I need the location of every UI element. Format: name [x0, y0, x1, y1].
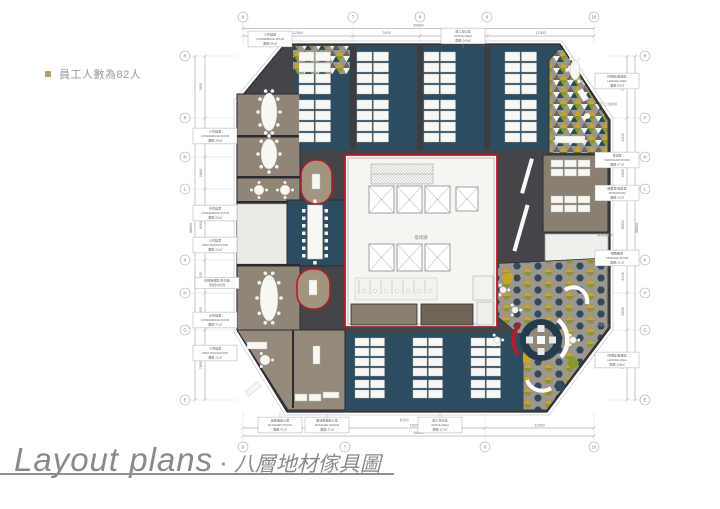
svg-text:12300: 12300	[293, 31, 304, 35]
svg-text:面積:108㎡: 面積:108㎡	[609, 362, 625, 367]
manager-desk	[247, 342, 267, 349]
svg-text:2600: 2600	[621, 169, 625, 177]
svg-text:K: K	[184, 258, 187, 263]
desk	[374, 63, 389, 72]
feature-seat	[537, 336, 545, 344]
svg-text:7800: 7800	[199, 83, 203, 91]
feature-seat	[538, 348, 545, 355]
svg-text:面積:41㎡: 面積:41㎡	[208, 322, 222, 327]
desk	[441, 133, 456, 142]
desk	[413, 358, 427, 366]
svg-text:WORKSHOP ROOM: WORKSHOP ROOM	[604, 158, 630, 162]
room-callout: 中會議室CONFERENCE ROOM面積:28㎡	[193, 205, 237, 221]
svg-text:12300: 12300	[535, 31, 546, 35]
office-chair	[309, 394, 321, 401]
desk	[357, 133, 372, 142]
desk	[471, 338, 485, 346]
desk	[371, 390, 385, 398]
room-callout: 休閒區/聯誼區LEISURE AREA面積:108㎡	[595, 352, 639, 368]
core-room-bottom	[351, 304, 417, 325]
desk	[505, 133, 520, 142]
svg-text:員工辦公區: 員工辦公區	[455, 28, 470, 33]
svg-text:DISCUSSION ROOM: DISCUSSION ROOM	[202, 243, 229, 247]
room-callout: 休閒等候區/多功能彈性使用空間	[195, 277, 239, 288]
svg-text:CONFERENCE ROOM: CONFERENCE ROOM	[256, 37, 285, 41]
svg-text:CONFERENCE ROOM: CONFERENCE ROOM	[201, 318, 230, 322]
desk	[471, 348, 485, 356]
desk	[371, 358, 385, 366]
desk	[424, 100, 439, 109]
desk	[316, 100, 331, 109]
desk	[357, 52, 372, 61]
svg-text:員工休息區: 員工休息區	[432, 417, 447, 422]
slide-canvas: 員工人數為82人	[0, 0, 720, 509]
desk	[316, 85, 331, 94]
svg-text:N: N	[183, 155, 186, 160]
pod-table	[309, 280, 317, 295]
desk	[522, 74, 537, 83]
desk	[551, 205, 563, 212]
room-callout: 小會議室CONFERENCE ROOM面積:36㎡	[248, 31, 292, 48]
desk	[471, 390, 485, 398]
lounge-bench	[555, 136, 585, 143]
svg-text:2600: 2600	[199, 169, 203, 177]
svg-text:38600: 38600	[189, 223, 193, 234]
staff-count-note: 員工人數為82人	[45, 66, 141, 82]
svg-text:OFFICE AREA: OFFICE AREA	[431, 423, 449, 427]
desk	[424, 111, 439, 120]
room-wall	[237, 176, 300, 179]
svg-text:面積:37㎡: 面積:37㎡	[320, 427, 334, 432]
svg-text:會議室: 會議室	[612, 152, 621, 157]
desk	[371, 348, 385, 356]
desk	[413, 348, 427, 356]
feature-seat	[526, 337, 533, 344]
desk	[299, 52, 314, 61]
svg-text:大會議室: 大會議室	[209, 312, 221, 317]
svg-text:G: G	[643, 328, 646, 333]
svg-text:面積:19㎡: 面積:19㎡	[208, 138, 222, 143]
svg-text:7800: 7800	[199, 361, 203, 369]
desk	[429, 380, 443, 388]
room-callout: 大會議室CONFERENCE ROOM面積:41㎡	[193, 312, 237, 328]
svg-text:LEISURE AREA: LEISURE AREA	[607, 79, 627, 83]
svg-text:R: R	[643, 54, 646, 59]
desk	[374, 111, 389, 120]
desk	[471, 358, 485, 366]
svg-text:E: E	[644, 398, 647, 403]
feature-seat	[538, 325, 545, 332]
desk	[355, 380, 369, 388]
desk	[424, 133, 439, 142]
desk	[505, 111, 520, 120]
desk	[374, 85, 389, 94]
svg-text:飲水台: 飲水台	[332, 45, 341, 50]
manager-desk	[313, 346, 320, 364]
svg-text:茶水間區域: 茶水間區域	[597, 232, 612, 237]
desk	[441, 85, 456, 94]
desk	[522, 52, 537, 61]
desk	[565, 196, 577, 203]
room-callout: 休閒區/聯誼區LEISURE AREA面積:85㎡	[595, 73, 639, 89]
room-callout: 儲藏室/檔案室WORKROOM面積:15㎡	[595, 185, 639, 201]
svg-text:3900: 3900	[621, 307, 625, 315]
svg-text:G: G	[183, 328, 186, 333]
svg-text:儲藏室/檔案室: 儲藏室/檔案室	[607, 185, 626, 190]
desk	[299, 63, 314, 72]
svg-text:8000: 8000	[621, 220, 625, 228]
desk	[357, 100, 372, 109]
staff-count-text: 員工人數為82人	[59, 66, 141, 82]
desk	[551, 196, 563, 203]
desk	[355, 358, 369, 366]
desk	[471, 368, 485, 376]
core-room-small	[473, 276, 493, 300]
desk	[424, 122, 439, 131]
svg-text:P: P	[184, 116, 187, 121]
desk	[316, 74, 331, 83]
lounge-table	[584, 113, 590, 119]
svg-text:H: H	[183, 291, 186, 296]
svg-text:面積:41㎡: 面積:41㎡	[273, 427, 287, 432]
desk	[487, 348, 501, 356]
core-room-bottom	[477, 302, 493, 325]
desk	[316, 122, 331, 131]
svg-text:LEISURE AREA: LEISURE AREA	[607, 358, 627, 362]
svg-text:E: E	[184, 398, 187, 403]
waiting-room-floor	[237, 204, 287, 264]
desk	[413, 338, 427, 346]
desk	[522, 133, 537, 142]
desk	[505, 63, 520, 72]
desk	[413, 368, 427, 376]
room-wall	[237, 264, 300, 267]
svg-text:小會議室: 小會議室	[264, 31, 276, 36]
svg-text:39800: 39800	[413, 24, 424, 28]
desk	[371, 380, 385, 388]
svg-text:電梯廳: 電梯廳	[414, 234, 428, 241]
svg-text:MANAGER OFFICE: MANAGER OFFICE	[268, 423, 292, 427]
desk	[565, 169, 577, 176]
svg-text:彈性使用空間: 彈性使用空間	[209, 283, 225, 287]
desk	[522, 85, 537, 94]
svg-text:總經理辦公室: 總經理辦公室	[271, 417, 290, 422]
svg-text:小會議室: 小會議室	[209, 237, 221, 242]
desk	[299, 111, 314, 120]
desk	[522, 63, 537, 72]
svg-text:面積:85㎡: 面積:85㎡	[610, 83, 624, 88]
svg-text:12300: 12300	[534, 424, 545, 428]
grid-wall-strip	[484, 46, 490, 150]
desk	[551, 169, 563, 176]
svg-text:茶水間: 茶水間	[399, 417, 408, 422]
desk	[316, 133, 331, 142]
desk	[357, 85, 372, 94]
svg-text:N: N	[643, 155, 646, 160]
svg-text:R: R	[183, 54, 186, 59]
svg-text:7600: 7600	[382, 31, 390, 35]
svg-text:8000: 8000	[199, 220, 203, 228]
desk	[441, 63, 456, 72]
desk	[371, 338, 385, 346]
desk	[316, 111, 331, 120]
svg-text:副總經理辦公室: 副總經理辦公室	[316, 417, 338, 422]
svg-text:4400: 4400	[621, 133, 625, 141]
desk	[424, 52, 439, 61]
desk	[429, 358, 443, 366]
desk	[355, 390, 369, 398]
office-chair	[295, 394, 307, 401]
svg-text:面積:117㎡: 面積:117㎡	[432, 427, 448, 432]
svg-text:4100: 4100	[621, 272, 625, 280]
desk	[357, 122, 372, 131]
desk	[316, 63, 331, 72]
svg-text:面積:240㎡: 面積:240㎡	[455, 38, 471, 43]
svg-text:休閒吧台: 休閒吧台	[597, 322, 609, 327]
svg-text:休閒區/聯誼區: 休閒區/聯誼區	[607, 73, 626, 78]
svg-text:面積:12㎡: 面積:12㎡	[208, 355, 222, 360]
desk	[374, 122, 389, 131]
desk	[505, 122, 520, 131]
desk	[551, 160, 563, 167]
office-sofa	[323, 392, 339, 398]
desk	[316, 52, 331, 61]
desk	[487, 358, 501, 366]
desk	[424, 74, 439, 83]
desk	[441, 100, 456, 109]
desk	[299, 85, 314, 94]
office-sofa	[245, 382, 261, 397]
svg-text:10: 10	[592, 445, 597, 450]
desk	[424, 63, 439, 72]
desk	[471, 380, 485, 388]
svg-text:P: P	[644, 116, 647, 121]
svg-text:WORKROOM: WORKROOM	[609, 191, 626, 195]
svg-text:STORAGE ROOM: STORAGE ROOM	[606, 256, 629, 260]
desk	[578, 196, 590, 203]
desk	[522, 122, 537, 131]
desk	[374, 52, 389, 61]
desk	[374, 74, 389, 83]
desk	[357, 111, 372, 120]
bullet-square-icon	[45, 71, 51, 77]
core-wc-floor	[355, 278, 437, 300]
floor-plan: 3980012300760076001230067891039800122001…	[175, 8, 665, 456]
room-callout: 小會議室DISCUSSION ROOM面積:12㎡	[193, 345, 237, 361]
desk	[357, 74, 372, 83]
svg-text:中會議室: 中會議室	[209, 205, 221, 210]
desk	[355, 348, 369, 356]
svg-text:CONFERENCE ROOM: CONFERENCE ROOM	[201, 211, 230, 215]
room-callout: 網路機房STORAGE ROOM面積:11㎡	[595, 250, 639, 266]
desk	[429, 338, 443, 346]
desk	[441, 111, 456, 120]
desk	[299, 100, 314, 109]
svg-text:OFFICE AREA: OFFICE AREA	[454, 34, 472, 38]
desk	[487, 380, 501, 388]
room-callout: 會議室WORKSHOP ROOM面積:27㎡	[595, 152, 639, 168]
desk	[487, 368, 501, 376]
room-callout: 小會議室DISCUSSION ROOM面積:12㎡	[193, 237, 237, 253]
desk	[299, 74, 314, 83]
pod-table	[312, 174, 320, 189]
desk	[355, 368, 369, 376]
core-room-bottom	[421, 304, 473, 325]
svg-text:面積:28㎡: 面積:28㎡	[208, 215, 222, 220]
desk	[429, 368, 443, 376]
desk	[505, 74, 520, 83]
svg-text:MANAGER OFFICE: MANAGER OFFICE	[315, 423, 339, 427]
desk	[505, 100, 520, 109]
svg-text:員工上班動線: 員工上班動線	[599, 101, 617, 106]
desk	[413, 380, 427, 388]
svg-text:K: K	[644, 258, 647, 263]
desk	[578, 160, 590, 167]
room-callout: 小會議室CONFERENCE ROOM面積:19㎡	[193, 128, 237, 144]
svg-text:H: H	[643, 291, 646, 296]
desk	[441, 52, 456, 61]
svg-text:面積:15㎡: 面積:15㎡	[610, 195, 624, 200]
svg-text:面積:27㎡: 面積:27㎡	[610, 162, 624, 167]
desk	[374, 100, 389, 109]
feature-seat	[549, 337, 556, 344]
svg-text:DISCUSSION ROOM: DISCUSSION ROOM	[202, 351, 229, 355]
desk	[299, 122, 314, 131]
svg-text:CONFERENCE ROOM: CONFERENCE ROOM	[201, 134, 230, 138]
desk	[565, 205, 577, 212]
svg-text:面積:36㎡: 面積:36㎡	[263, 41, 277, 46]
desk	[357, 63, 372, 72]
svg-text:休閒等候區/多功能: 休閒等候區/多功能	[204, 278, 230, 283]
desk	[487, 390, 501, 398]
desk	[505, 52, 520, 61]
desk	[565, 160, 577, 167]
svg-text:網路機房: 網路機房	[611, 250, 623, 255]
desk	[441, 74, 456, 83]
desk	[578, 205, 590, 212]
title-underline	[0, 473, 394, 475]
svg-text:小會議室: 小會議室	[209, 345, 221, 350]
desk	[299, 133, 314, 142]
desk	[578, 169, 590, 176]
desk	[522, 100, 537, 109]
svg-text:小會議室: 小會議室	[209, 128, 221, 133]
grid-wall-strip	[350, 46, 356, 150]
desk	[505, 85, 520, 94]
desk	[522, 111, 537, 120]
svg-text:10: 10	[592, 15, 597, 20]
svg-text:面積:12㎡: 面積:12㎡	[208, 247, 222, 252]
desk	[429, 348, 443, 356]
svg-text:面積:11㎡: 面積:11㎡	[610, 260, 624, 265]
svg-text:38600: 38600	[635, 223, 639, 234]
svg-text:休閒區/聯誼區: 休閒區/聯誼區	[607, 352, 626, 357]
desk	[441, 122, 456, 131]
desk	[429, 390, 443, 398]
desk	[424, 85, 439, 94]
desk	[374, 133, 389, 142]
desk	[355, 338, 369, 346]
desk	[371, 368, 385, 376]
desk	[413, 390, 427, 398]
grid-wall-strip	[417, 46, 423, 150]
